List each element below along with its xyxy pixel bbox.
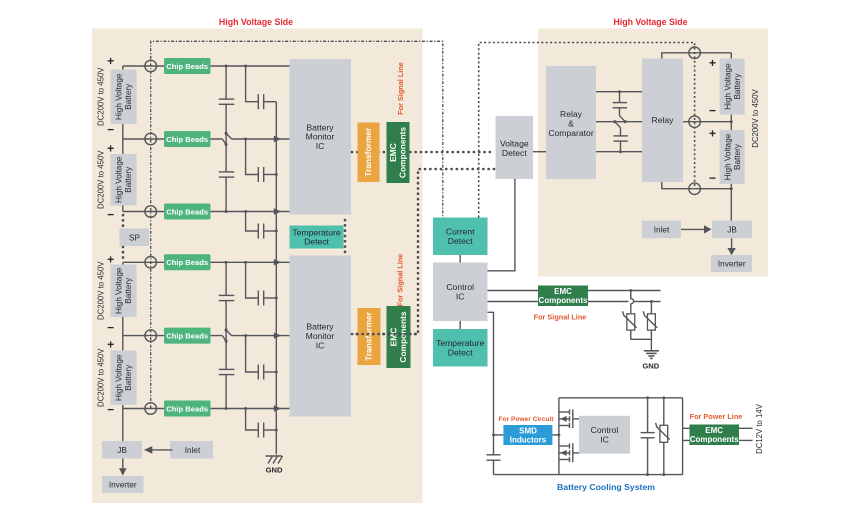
- svg-text:High Voltage: High Voltage: [723, 63, 732, 110]
- svg-text:Transformer: Transformer: [363, 127, 373, 177]
- svg-text:−: −: [107, 123, 114, 137]
- svg-text:Chip Beads: Chip Beads: [166, 207, 208, 216]
- svg-text:Battery: Battery: [124, 364, 133, 391]
- svg-text:+: +: [709, 56, 716, 70]
- svg-text:Inverter: Inverter: [109, 481, 137, 490]
- svg-text:Chip Beads: Chip Beads: [166, 258, 208, 267]
- svg-text:DC12V to 14V: DC12V to 14V: [755, 403, 764, 454]
- svg-text:Inductors: Inductors: [510, 435, 547, 444]
- svg-text:DC200V to 450V: DC200V to 450V: [96, 67, 105, 126]
- svg-text:High Voltage: High Voltage: [115, 73, 124, 120]
- svg-text:Transformer: Transformer: [364, 311, 374, 361]
- svg-text:Battery Cooling System: Battery Cooling System: [557, 482, 655, 492]
- svg-text:JB: JB: [117, 446, 127, 455]
- svg-text:Detect: Detect: [304, 237, 329, 247]
- svg-text:For Signal Line: For Signal Line: [534, 313, 587, 322]
- svg-text:For Signal Line: For Signal Line: [396, 254, 405, 307]
- svg-text:SP: SP: [129, 233, 140, 242]
- svg-text:Comparator: Comparator: [548, 128, 594, 138]
- svg-text:+: +: [709, 127, 716, 141]
- svg-text:For Signal Line: For Signal Line: [396, 62, 405, 115]
- svg-text:DC200V to 450V: DC200V to 450V: [751, 88, 760, 147]
- svg-text:−: −: [709, 171, 716, 185]
- svg-text:−: −: [107, 403, 114, 417]
- svg-text:Battery: Battery: [124, 277, 133, 304]
- svg-text:For Power Circuit: For Power Circuit: [499, 416, 555, 423]
- svg-text:IC: IC: [456, 291, 465, 301]
- svg-text:Battery: Battery: [124, 166, 133, 193]
- svg-text:IC: IC: [600, 434, 609, 444]
- svg-text:+: +: [107, 142, 114, 156]
- svg-text:High Voltage Side: High Voltage Side: [219, 17, 293, 27]
- svg-text:Inlet: Inlet: [654, 225, 670, 234]
- svg-text:Inverter: Inverter: [718, 260, 746, 269]
- svg-text:−: −: [107, 208, 114, 222]
- svg-text:DC200V to 450V: DC200V to 450V: [96, 348, 105, 407]
- svg-text:IC: IC: [316, 340, 325, 350]
- svg-text:DC200V to 450V: DC200V to 450V: [96, 261, 105, 320]
- svg-text:DC200V to 450V: DC200V to 450V: [96, 150, 105, 209]
- svg-text:High Voltage: High Voltage: [115, 354, 124, 401]
- svg-text:−: −: [709, 104, 716, 118]
- svg-text:Components: Components: [398, 311, 408, 363]
- svg-text:JB: JB: [727, 225, 737, 234]
- svg-text:Chip Beads: Chip Beads: [166, 332, 208, 341]
- svg-text:High Voltage: High Voltage: [723, 133, 732, 180]
- svg-text:SMD: SMD: [519, 426, 537, 435]
- svg-text:Battery: Battery: [733, 143, 742, 170]
- svg-text:High Voltage: High Voltage: [115, 156, 124, 203]
- svg-text:+: +: [107, 54, 114, 68]
- svg-text:Battery: Battery: [733, 73, 742, 100]
- svg-text:High Voltage Side: High Voltage Side: [613, 17, 687, 27]
- svg-text:High Voltage: High Voltage: [115, 267, 124, 314]
- svg-text:Components: Components: [397, 127, 407, 179]
- svg-text:+: +: [107, 338, 114, 352]
- svg-text:For Power Line: For Power Line: [690, 412, 743, 421]
- svg-text:EMC: EMC: [705, 426, 723, 435]
- svg-text:GND: GND: [642, 362, 659, 371]
- svg-text:Chip Beads: Chip Beads: [166, 135, 208, 144]
- svg-text:GND: GND: [266, 466, 283, 475]
- svg-text:Chip Beads: Chip Beads: [166, 62, 208, 71]
- svg-text:EMC: EMC: [554, 287, 572, 296]
- svg-text:Inlet: Inlet: [185, 446, 201, 455]
- svg-text:Detect: Detect: [448, 347, 473, 357]
- svg-text:Components: Components: [539, 296, 588, 305]
- svg-text:IC: IC: [316, 141, 325, 151]
- svg-text:Components: Components: [690, 435, 739, 444]
- svg-text:Relay: Relay: [652, 115, 675, 125]
- svg-text:Detect: Detect: [448, 236, 473, 246]
- svg-text:Battery: Battery: [124, 83, 133, 110]
- svg-text:Chip Beads: Chip Beads: [166, 404, 208, 413]
- svg-text:Detect: Detect: [502, 148, 527, 158]
- svg-text:−: −: [107, 321, 114, 335]
- svg-text:+: +: [107, 253, 114, 267]
